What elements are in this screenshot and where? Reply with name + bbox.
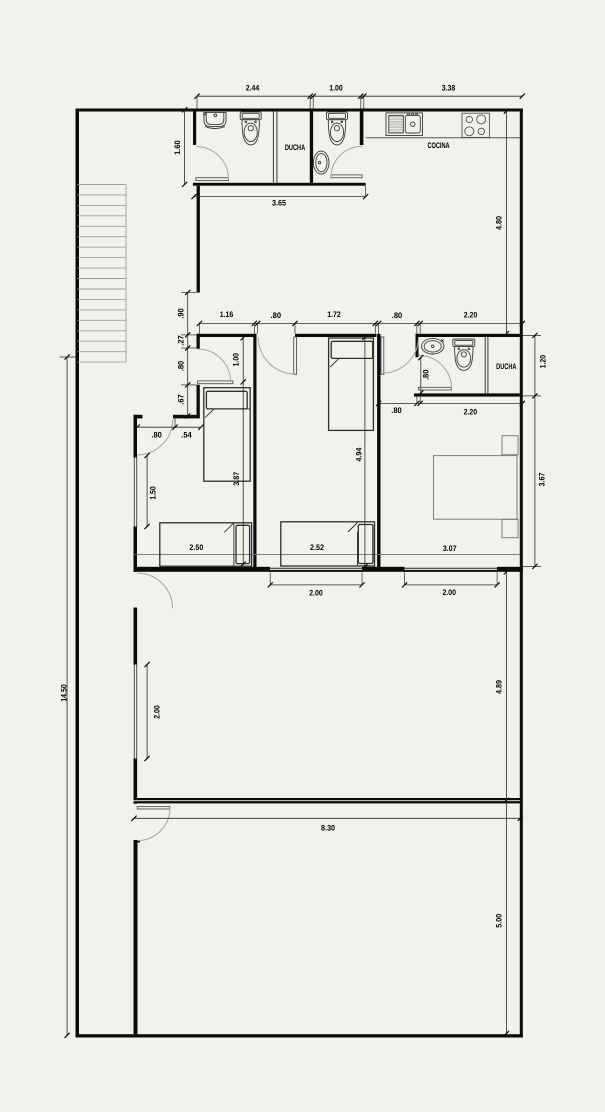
svg-text:1.20: 1.20 xyxy=(538,354,547,368)
svg-text:3.07: 3.07 xyxy=(443,544,457,553)
svg-text:3.67: 3.67 xyxy=(538,472,547,486)
svg-text:2.20: 2.20 xyxy=(464,311,478,320)
svg-text:2.00: 2.00 xyxy=(309,588,323,597)
svg-text:.67: .67 xyxy=(176,394,185,405)
svg-text:.80: .80 xyxy=(151,430,162,439)
svg-text:3.38: 3.38 xyxy=(442,84,456,93)
svg-text:1.72: 1.72 xyxy=(327,310,341,319)
svg-text:1.00: 1.00 xyxy=(329,84,343,93)
svg-text:DUCHA: DUCHA xyxy=(285,143,305,152)
svg-text:COCINA: COCINA xyxy=(427,141,449,150)
svg-text:5.00: 5.00 xyxy=(495,913,504,927)
svg-text:1.00: 1.00 xyxy=(232,352,241,366)
svg-text:4.80: 4.80 xyxy=(495,216,504,230)
svg-text:4.94: 4.94 xyxy=(355,447,364,461)
svg-text:1.16: 1.16 xyxy=(220,310,234,319)
svg-text:14.50: 14.50 xyxy=(59,684,68,702)
svg-text:2.50: 2.50 xyxy=(189,543,203,552)
svg-text:1.50: 1.50 xyxy=(148,486,157,500)
svg-text:.80: .80 xyxy=(391,406,402,415)
svg-text:.27: .27 xyxy=(176,335,185,346)
svg-text:.90: .90 xyxy=(176,308,185,319)
svg-text:2.52: 2.52 xyxy=(310,543,324,552)
svg-text:1.60: 1.60 xyxy=(173,140,182,155)
svg-text:.80: .80 xyxy=(271,311,282,320)
svg-text:8.30: 8.30 xyxy=(321,823,335,832)
svg-text:DUCHA: DUCHA xyxy=(496,362,516,371)
svg-text:.80: .80 xyxy=(392,311,403,320)
svg-text:2.20: 2.20 xyxy=(464,407,478,416)
svg-text:2.00: 2.00 xyxy=(152,705,161,719)
svg-text:.54: .54 xyxy=(181,431,192,440)
svg-text:4.89: 4.89 xyxy=(494,680,503,694)
svg-text:3.87: 3.87 xyxy=(232,471,241,485)
svg-text:2.00: 2.00 xyxy=(442,588,456,597)
svg-text:.80: .80 xyxy=(422,369,431,380)
svg-text:.80: .80 xyxy=(176,360,185,371)
svg-text:3.65: 3.65 xyxy=(272,199,286,208)
svg-text:2.44: 2.44 xyxy=(246,84,260,93)
